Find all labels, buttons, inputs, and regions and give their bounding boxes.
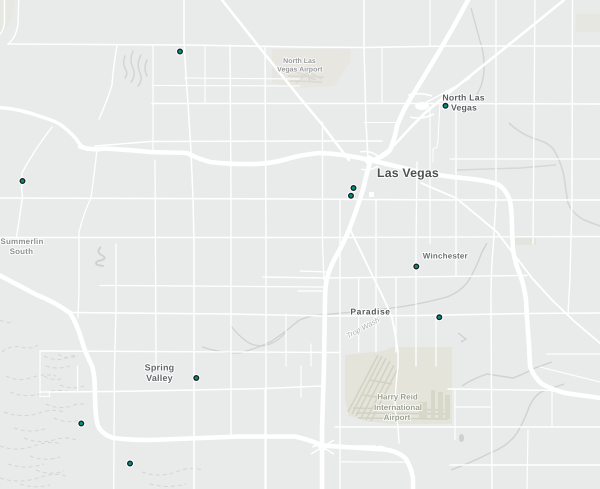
svg-text:Vegas: Vegas [451,103,477,113]
svg-text:Winchester: Winchester [423,252,468,261]
svg-text:Summerlin: Summerlin [0,237,43,246]
svg-text:Spring: Spring [145,363,175,373]
svg-text:North Las: North Las [283,57,316,65]
svg-text:North Las: North Las [442,93,484,103]
svg-text:Las Vegas: Las Vegas [377,166,439,180]
svg-text:Valley: Valley [146,373,173,383]
svg-text:Vegas Airport: Vegas Airport [277,66,323,74]
svg-text:Paradise: Paradise [350,307,390,317]
svg-text:Harry Reid: Harry Reid [377,393,418,402]
svg-text:International: International [374,403,422,412]
svg-text:South: South [10,247,34,256]
svg-text:Airport: Airport [384,413,411,422]
